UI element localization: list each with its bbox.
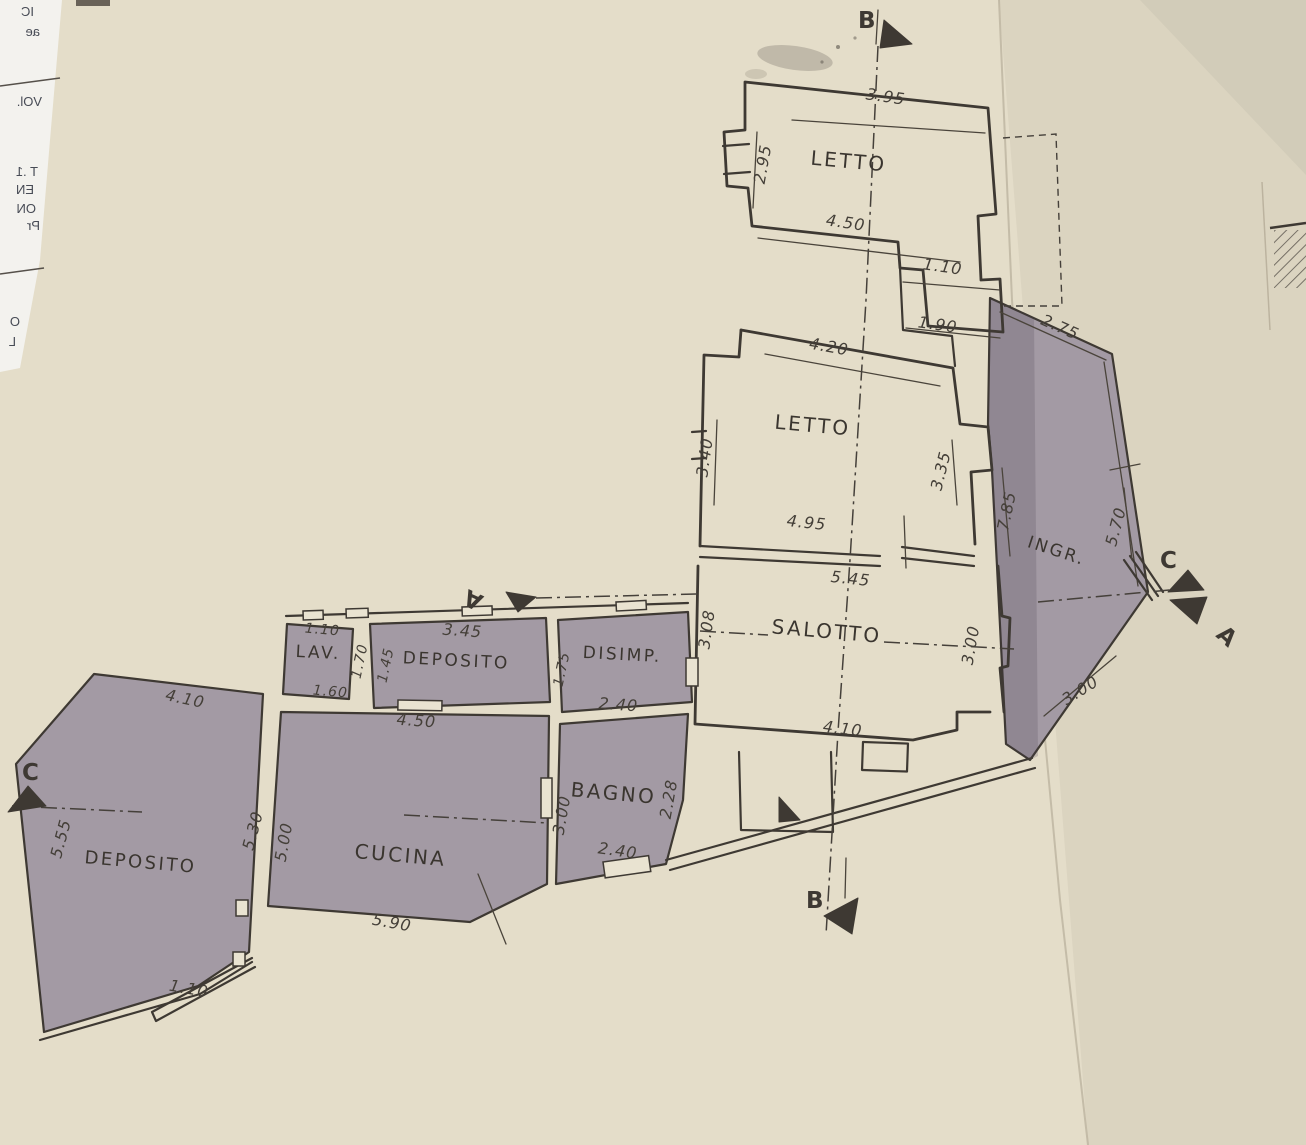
window-lav (303, 610, 323, 620)
mirrored-text-fragment: ae (26, 24, 40, 39)
opening-cucina-left2 (233, 952, 245, 966)
mirrored-text-fragment: O (10, 314, 20, 329)
room-label-lavanderia: LAV. (295, 642, 341, 664)
mirrored-text-fragment: ON (17, 201, 37, 216)
ink-speck (853, 36, 856, 39)
floor-plan-canvas: IC ae VOl. T .1 EN ON Pr O L (0, 0, 1306, 1145)
opening-deposito-cucina (398, 700, 442, 711)
section-marker-b-top: B (858, 8, 876, 34)
scanned-floor-plan-page: IC ae VOl. T .1 EN ON Pr O L (0, 0, 1306, 1145)
opening-disimpegno-salotto (686, 658, 698, 686)
dim-disimpegno-bottom: 2.40 (598, 694, 639, 716)
ink-smudge (745, 69, 767, 79)
edge-mark (76, 0, 110, 6)
window-disimpegno (616, 600, 646, 611)
ink-speck (836, 45, 840, 49)
opening-bagno-left (541, 778, 552, 818)
ink-speck (820, 60, 823, 63)
dim-lav-bottom: 1.60 (312, 683, 348, 702)
mirrored-text-fragment: T .1 (16, 164, 38, 179)
dim-deposito-small-bottom: 4.50 (396, 710, 437, 732)
dim-deposito-small-top: 3.45 (442, 620, 483, 642)
dim-lav-top: 1.10 (304, 621, 340, 640)
section-marker-c-left: C (22, 760, 39, 786)
room-label-disimpegno: DISIMP. (582, 643, 662, 667)
opening-cucina-left (236, 900, 248, 916)
mirrored-text-fragment: Pr (26, 218, 40, 233)
dimension-labels-extra: 4.50 (430, 732, 471, 754)
section-marker-c-right: C (1160, 548, 1177, 574)
section-marker-b-bottom: B (806, 888, 824, 914)
mirrored-text-fragment: VOl. (17, 94, 42, 109)
mirrored-text-fragment: EN (16, 182, 34, 197)
mirrored-text-fragment: IC (21, 4, 34, 19)
mirrored-text-fragment: L (9, 334, 16, 349)
window-row (346, 608, 368, 618)
room-cucina (268, 712, 549, 922)
ground-hatch-fragment (1274, 230, 1306, 288)
